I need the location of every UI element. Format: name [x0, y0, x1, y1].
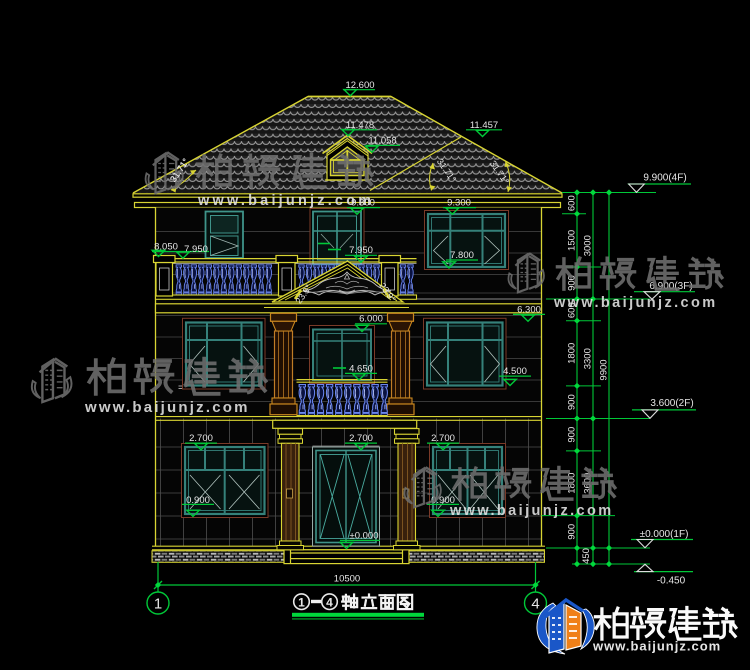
svg-text:7.800: 7.800: [450, 250, 474, 261]
svg-text:2.700: 2.700: [349, 433, 373, 444]
svg-text:6.000: 6.000: [359, 314, 383, 325]
svg-text:www.baijunjz.com: www.baijunjz.com: [84, 399, 250, 416]
svg-text:3.600(2F): 3.600(2F): [650, 398, 693, 409]
svg-text:-0.450: -0.450: [657, 576, 686, 587]
svg-text:9900: 9900: [599, 359, 610, 380]
svg-text:www.baijunjz.com: www.baijunjz.com: [553, 295, 718, 311]
svg-text:4.650: 4.650: [349, 363, 373, 374]
svg-text:2.700: 2.700: [431, 433, 455, 444]
svg-text:4: 4: [326, 595, 333, 609]
svg-text:900: 900: [567, 394, 578, 410]
svg-text:7.950: 7.950: [349, 245, 373, 256]
svg-text:1800: 1800: [567, 343, 578, 364]
svg-text:1: 1: [154, 596, 162, 613]
svg-text:www.baijunjz.com: www.baijunjz.com: [197, 193, 374, 209]
svg-text:6.300: 6.300: [517, 304, 541, 315]
svg-text:1: 1: [298, 595, 305, 609]
svg-text:9.900(4F): 9.900(4F): [643, 173, 686, 184]
svg-text:3300: 3300: [583, 348, 594, 369]
svg-text:3000: 3000: [583, 235, 594, 256]
svg-text:www.baijunjz.com: www.baijunjz.com: [592, 639, 721, 654]
svg-text:900: 900: [567, 524, 578, 540]
svg-text:±0.000(1F): ±0.000(1F): [640, 529, 689, 540]
svg-text:www.baijunjz.com: www.baijunjz.com: [449, 503, 614, 519]
svg-text:1500: 1500: [567, 230, 578, 251]
svg-text:450: 450: [581, 548, 592, 564]
svg-text:4.500: 4.500: [503, 366, 527, 377]
svg-text:600: 600: [567, 195, 578, 211]
svg-text:4: 4: [531, 596, 539, 613]
svg-text:2.700: 2.700: [189, 433, 213, 444]
svg-text:10500: 10500: [334, 574, 360, 585]
svg-text:900: 900: [567, 427, 578, 443]
svg-text:±0.000: ±0.000: [350, 530, 379, 541]
